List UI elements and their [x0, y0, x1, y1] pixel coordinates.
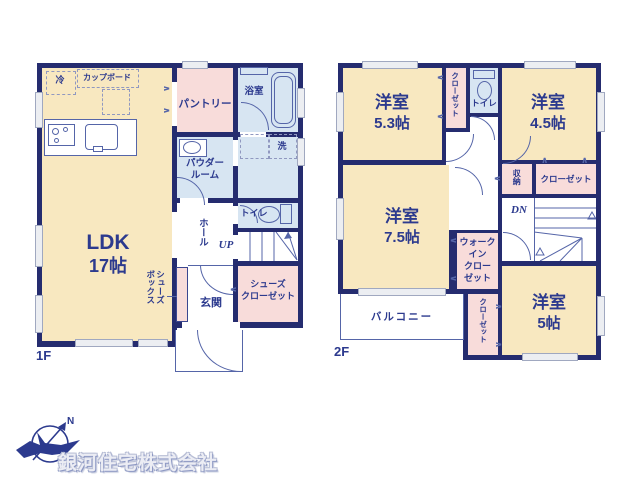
f1-stove-burner-2: [63, 127, 68, 132]
f1-powder-sink-basin: [183, 141, 201, 154]
f2-window-bottom: [522, 353, 578, 361]
f1-opening-laundry: [233, 140, 238, 166]
f1-up-label: UP: [215, 238, 237, 252]
f1-entrance-label: 玄関: [189, 296, 233, 310]
f1-shoe-box-label: シューズ ボックス: [145, 270, 165, 326]
f2-toilet-tank: [473, 70, 495, 79]
f2-closet-mid-mark-1: ∧: [541, 156, 548, 165]
f1-toilet-label: トイレ: [239, 208, 269, 220]
f1-ldk-name: LDK: [78, 229, 138, 256]
f2-closet-top-label: クローゼット: [450, 72, 459, 126]
f2-closet-mid-mark-2: ∧: [581, 156, 588, 165]
f1-window-left-2: [35, 225, 43, 267]
f1-counter-outline: [102, 89, 130, 115]
f2-room45-size: 4.5帖: [518, 114, 578, 134]
f2-room5-size: 5帖: [519, 314, 579, 334]
f1-kitchen-faucet: [93, 146, 103, 152]
f1-shoe-closet-label: シューズ クローゼット: [240, 279, 296, 302]
f2-window-right-2: [597, 296, 605, 336]
f1-window-laundry-right: [297, 138, 305, 166]
f1-pantry-label: パントリー: [177, 98, 233, 112]
f1-entrance-threshold: [182, 322, 240, 330]
f1-shoe-box-cabinet: [176, 267, 188, 322]
f1-hall-label: ホール: [196, 218, 207, 262]
f1-shoe-closet-door-mark: ∧: [229, 286, 238, 293]
f1-opening-ldk-hall: [172, 212, 177, 258]
f2-toilet-label: トイレ: [469, 98, 499, 109]
f2-floor-label: 2F: [334, 344, 349, 359]
f2-storage-label: 収納: [512, 169, 521, 191]
f2-balcony-door: [358, 288, 446, 296]
f1-laundry-box-1: [240, 134, 269, 159]
f2-storage-mark: ∧: [493, 175, 502, 182]
f2-room75-name: 洋室: [372, 206, 432, 228]
f2-wic-label: ウォーク イン クロー ゼット: [457, 236, 498, 285]
f1-window-left-3: [35, 295, 43, 333]
f2-window-left-2: [336, 198, 344, 240]
f1-window-ldk-bottom-1: [75, 339, 133, 347]
f1-window-left-1: [35, 92, 43, 128]
f2-closet-top-mark-2: ∧: [436, 113, 445, 120]
f1-bath-vanity: [240, 67, 268, 75]
f2-window-right-1: [597, 92, 605, 132]
f2-window-top-2: [524, 61, 576, 69]
f2-window-top-1: [362, 61, 418, 69]
f1-laundry-label: 洗: [270, 141, 294, 153]
f2-balcony-label: バルコニー: [352, 311, 452, 325]
f1-cupboard-label: カップボード: [78, 73, 136, 83]
f1-window-bath-right: [297, 88, 305, 118]
f2-stairs-treads: [534, 198, 596, 261]
f2-closet-mid-label: クローゼット: [536, 174, 596, 185]
f1-bathroom-label: 浴室: [236, 86, 272, 98]
f2-room53-name: 洋室: [362, 92, 422, 114]
f2-window-left-1: [336, 92, 344, 132]
f2-room45-name: 洋室: [518, 92, 578, 114]
f2-closet-bottom-mark-1: ∧: [494, 303, 503, 310]
f2-closet-bottom-mark-2: ∧: [494, 341, 503, 348]
f1-shoe-box-pointer: [167, 296, 177, 297]
f1-powder-label: パウダー ルーム: [179, 158, 231, 183]
floorplan-canvas: ∧ ∧ ∧ 冷 カップボード パントリー 浴室 洗 パウダー ルーム トイレ ホ…: [0, 0, 640, 480]
f1-bathtub-inner: [274, 76, 293, 124]
f1-fridge-label: 冷: [47, 75, 73, 87]
f1-opening-toilet: [233, 206, 238, 224]
company-name: 銀河住宅株式会社: [58, 448, 218, 475]
f2-closet-top-mark-1: ∧: [436, 74, 445, 81]
f2-room75-size: 7.5帖: [372, 228, 432, 248]
f1-pantry-door-mark-1: ∧: [162, 85, 171, 92]
f1-stairs-treads: [238, 232, 298, 261]
f2-room53-size: 5.3帖: [362, 114, 422, 134]
f1-window-ldk-bottom-2: [138, 339, 168, 347]
f1-floor-label: 1F: [36, 348, 51, 363]
f2-room5-name: 洋室: [519, 292, 579, 314]
f1-stove: [48, 124, 75, 146]
f1-pantry-door-mark-2: ∧: [162, 107, 171, 114]
compass-n-label: N: [67, 416, 74, 427]
f1-window-pantry-top: [182, 61, 208, 69]
f1-ldk-size: 17帖: [78, 255, 138, 278]
f2-dn-label: DN: [506, 203, 532, 217]
f1-stove-burner-3: [54, 138, 59, 143]
f2-closet-bottom-label: クローゼット: [478, 298, 487, 353]
f1-stove-burner-1: [52, 128, 59, 135]
f1-toilet-tank: [280, 204, 292, 224]
